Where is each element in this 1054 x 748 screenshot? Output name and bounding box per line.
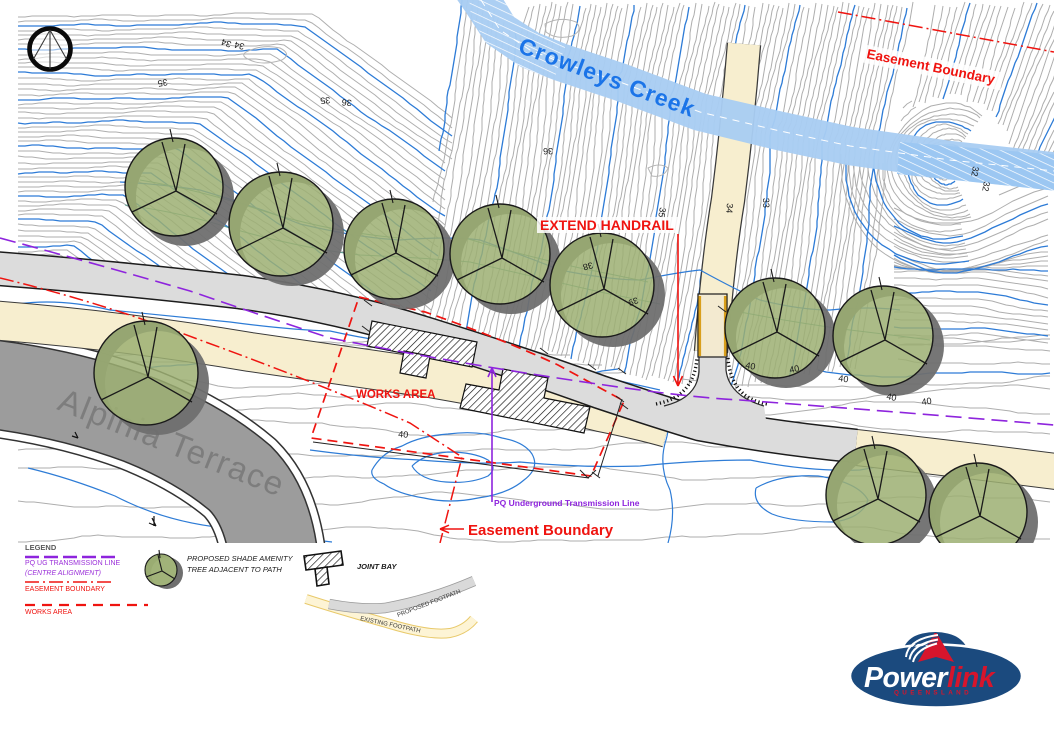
svg-text:JOINT BAY: JOINT BAY bbox=[357, 562, 397, 571]
svg-text:WORKS AREA: WORKS AREA bbox=[25, 609, 72, 616]
svg-text:33: 33 bbox=[761, 198, 771, 208]
svg-text:PROPOSED SHADE AMENITY: PROPOSED SHADE AMENITY bbox=[187, 554, 294, 563]
svg-text:35: 35 bbox=[656, 207, 668, 219]
svg-text:EASEMENT BOUNDARY: EASEMENT BOUNDARY bbox=[25, 586, 105, 593]
svg-text:LEGEND: LEGEND bbox=[25, 543, 57, 552]
svg-text:40: 40 bbox=[921, 396, 932, 407]
svg-text:(CENTRE ALIGNMENT): (CENTRE ALIGNMENT) bbox=[25, 570, 101, 577]
svg-text:PQ Underground Transmission Li: PQ Underground Transmission Line bbox=[494, 498, 640, 508]
svg-text:TREE ADJACENT TO PATH: TREE ADJACENT TO PATH bbox=[187, 565, 282, 574]
svg-text:QUEENSLAND: QUEENSLAND bbox=[894, 690, 972, 697]
svg-text:40: 40 bbox=[886, 391, 898, 403]
svg-text:40: 40 bbox=[788, 363, 800, 375]
svg-text:35: 35 bbox=[157, 77, 169, 89]
svg-text:35: 35 bbox=[320, 95, 331, 106]
svg-text:40: 40 bbox=[398, 429, 409, 440]
svg-text:WORKS AREA: WORKS AREA bbox=[356, 389, 435, 401]
svg-text:EXTEND HANDRAIL: EXTEND HANDRAIL bbox=[540, 217, 674, 233]
svg-text:40: 40 bbox=[745, 360, 757, 372]
svg-text:36: 36 bbox=[341, 97, 352, 108]
svg-text:40: 40 bbox=[838, 373, 849, 384]
svg-text:34: 34 bbox=[724, 203, 735, 214]
svg-text:36: 36 bbox=[543, 146, 553, 156]
svg-text:32: 32 bbox=[980, 181, 992, 193]
svg-text:32: 32 bbox=[969, 166, 981, 178]
svg-text:Easement Boundary: Easement Boundary bbox=[468, 522, 614, 539]
svg-text:PQ UG TRANSMISSION LINE: PQ UG TRANSMISSION LINE bbox=[25, 560, 120, 567]
